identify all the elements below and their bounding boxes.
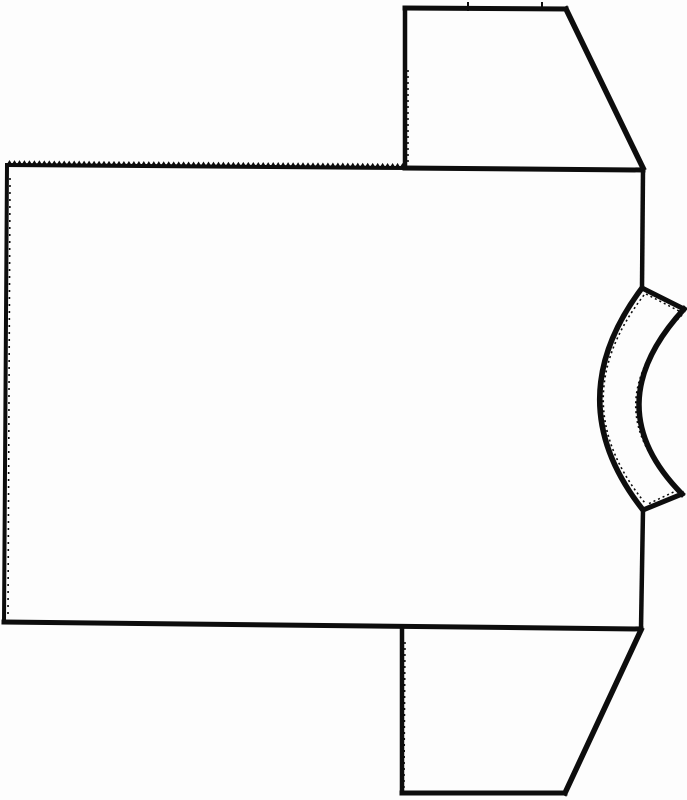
sewing-pattern-page (0, 0, 687, 800)
body-shoulder-zigzag-edge-base (7, 165, 405, 168)
neckband-top-edge (642, 288, 684, 309)
sleeve-top-diagonal-edge (566, 9, 643, 168)
sleeve-bottom-diagonal-edge (565, 630, 641, 793)
body-top-edge (405, 168, 643, 170)
body-right-edge-lower (641, 510, 643, 629)
pattern-drawing (0, 0, 687, 800)
body-right-edge-upper (642, 170, 643, 288)
neckband-bottom-edge (643, 494, 682, 510)
neckband-inner-arc (639, 309, 684, 494)
body-left-edge (4, 165, 7, 622)
body-bottom-edge (4, 622, 641, 629)
